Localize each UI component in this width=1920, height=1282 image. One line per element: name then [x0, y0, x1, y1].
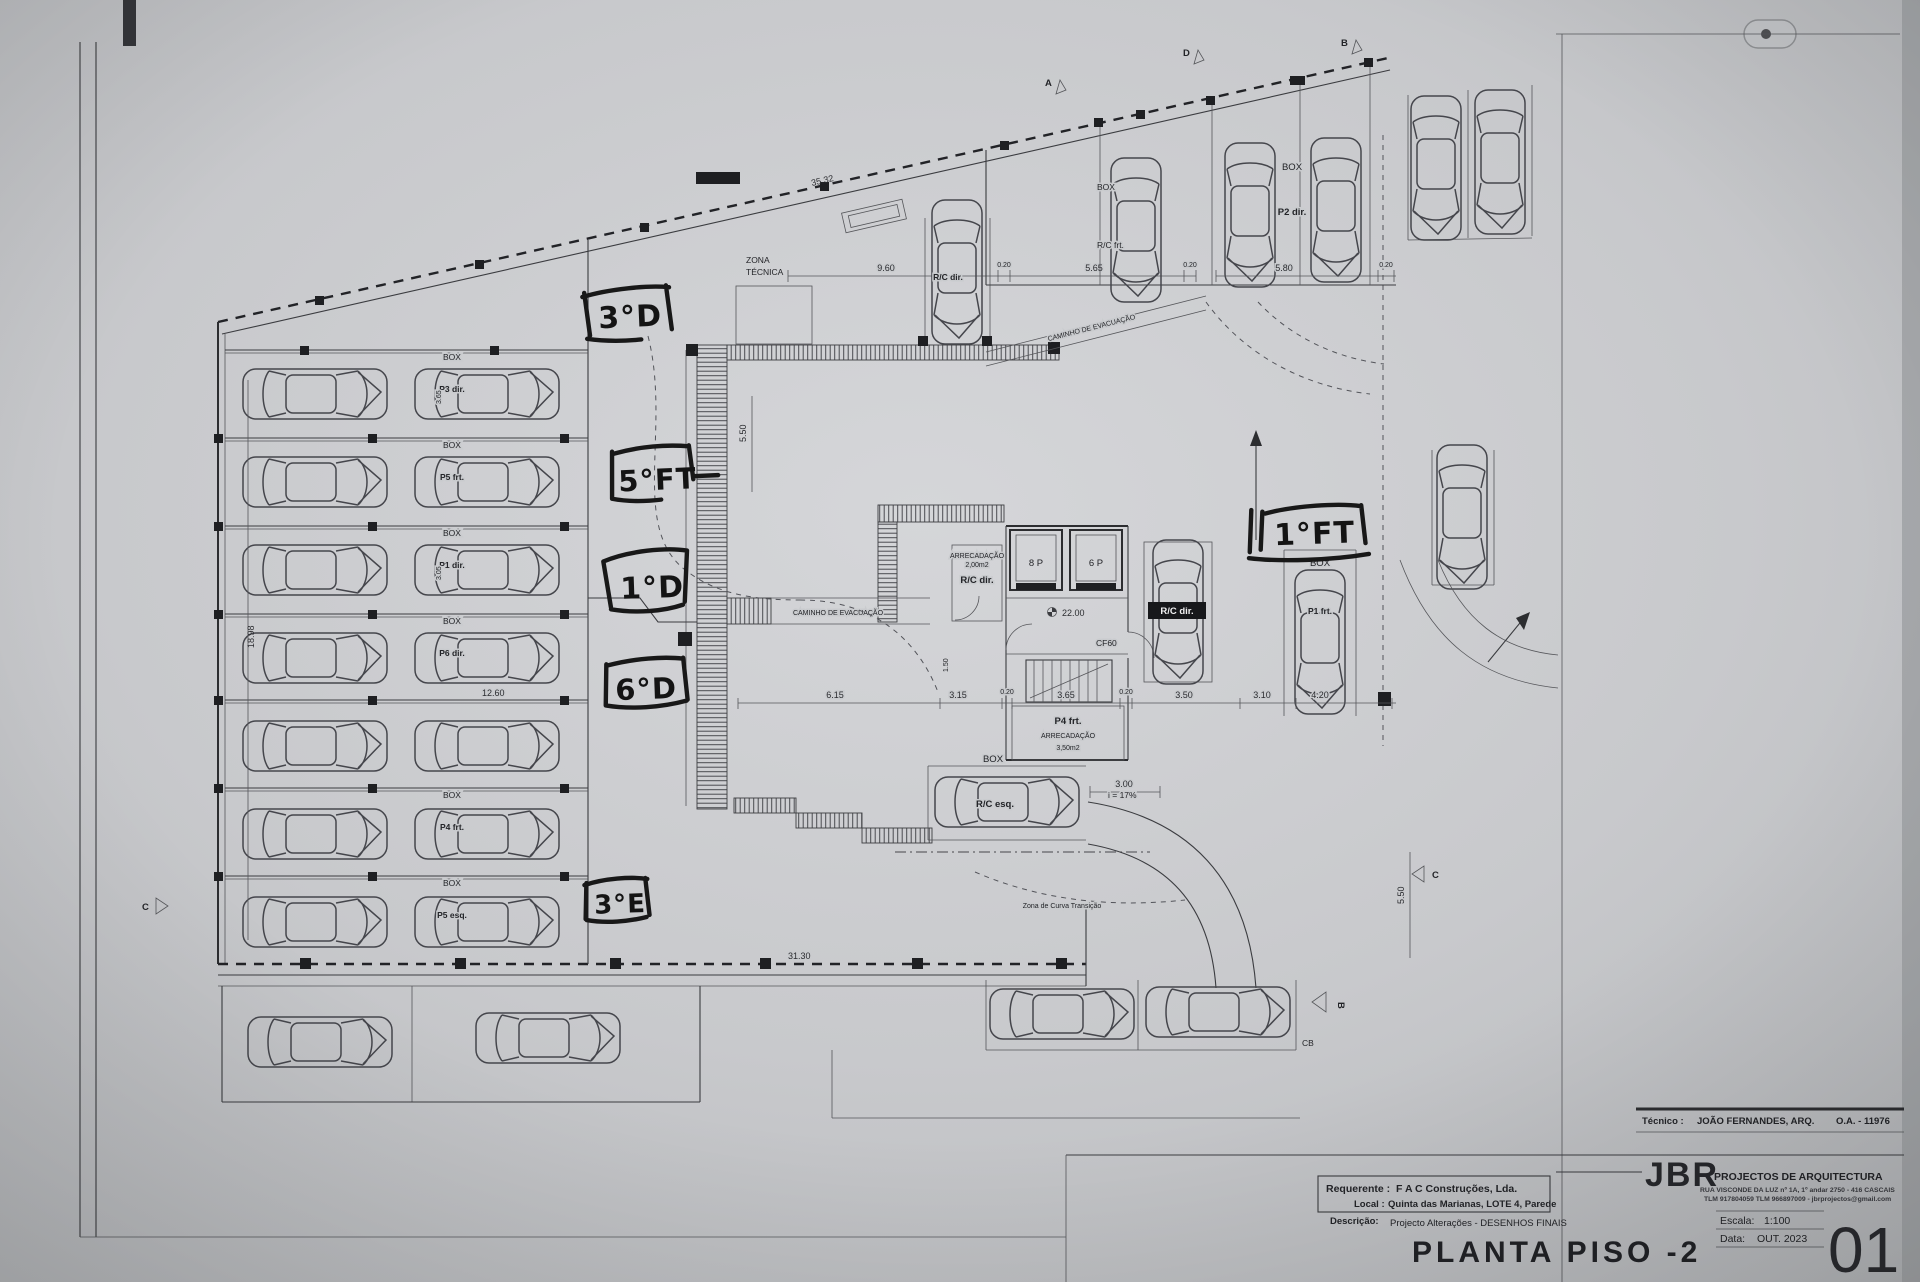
data-value: OUT. 2023: [1757, 1233, 1807, 1245]
dim-365: 3.65: [1057, 690, 1075, 700]
section-c-label: C: [142, 902, 149, 913]
rc-esq-label: R/C esq.: [976, 799, 1014, 810]
dim-615: 6.15: [826, 690, 844, 700]
data-label: Data:: [1720, 1233, 1745, 1245]
svg-text:1°FT: 1°FT: [1274, 515, 1356, 553]
escala-label: Escala:: [1720, 1215, 1754, 1227]
curve-note: Zona de Curva Transição: [1023, 903, 1102, 910]
tecnico-name: JOÃO FERNANDES, ARQ.: [1697, 1116, 1814, 1127]
dim-300: 3.00: [1115, 779, 1133, 789]
dim-350: 3.50: [1175, 690, 1193, 700]
rc-dir-label-inverse: R/C dir.: [1160, 606, 1193, 617]
floor-plan-photo: 35.32 31.30 BOX P3 dir. 3.65 BOX P5 frt.…: [0, 0, 1920, 1282]
box-label: BOX: [443, 878, 461, 888]
level-value: 22.00: [1062, 608, 1085, 618]
dim-580: 5.80: [1275, 263, 1293, 273]
arrecadacao-label: ARRECADAÇÃO: [1041, 731, 1096, 740]
slope-label: i = 17%: [1108, 790, 1137, 800]
local-label: Local :: [1354, 1199, 1385, 1210]
box-label: BOX: [443, 440, 461, 450]
tecnico-number: O.A. - 11976: [1836, 1116, 1890, 1127]
dim-365-row: 3.65: [436, 390, 443, 404]
box-label: BOX: [443, 616, 461, 626]
svg-text:5°FT: 5°FT: [618, 461, 698, 498]
section-d-label: D: [1183, 48, 1190, 59]
lift-6p-label: 6 P: [1089, 558, 1103, 569]
dim-020: 0.20: [1119, 689, 1133, 696]
box-label: BOX: [1097, 182, 1115, 192]
svg-text:6°D: 6°D: [615, 671, 678, 707]
stall-label-p1-frt: P1 frt.: [1308, 606, 1332, 616]
arrecadacao-area: 3,50m2: [1056, 745, 1079, 752]
drawing-title: PLANTA PISO -2: [1412, 1236, 1701, 1269]
requerente-value: F A C Construções, Lda.: [1396, 1183, 1517, 1195]
svg-text:3°E: 3°E: [594, 889, 647, 921]
rc-dir-label: R/C dir.: [933, 272, 963, 282]
caminho-evacuacao-label: CAMINHO DE EVACUAÇÃO: [793, 608, 884, 617]
tecnico-label: Técnico :: [1642, 1116, 1684, 1127]
dim-310: 3.10: [1253, 690, 1271, 700]
sheet-number: 01: [1828, 1214, 1899, 1282]
door-code-cf60: CF60: [1096, 638, 1117, 648]
dim-960: 9.60: [877, 263, 895, 273]
dim-020: 0.20: [997, 262, 1011, 269]
stall-label-p3-dir: P3 dir.: [439, 384, 465, 394]
zona-tecnica-line1: ZONA: [746, 255, 770, 265]
stall-label-p2-dir: P2 dir.: [1278, 207, 1307, 218]
svg-text:1°D: 1°D: [620, 570, 685, 607]
dim-020: 0.20: [1000, 689, 1014, 696]
dim-1260: 12.60: [482, 688, 505, 698]
arrecadacao-label: ARRECADAÇÃO: [950, 551, 1005, 560]
dim-550: 5.50: [738, 424, 748, 442]
photo-corner-mark: [123, 0, 136, 46]
rc-dir-label: R/C dir.: [960, 575, 993, 586]
stall-label-p4-frt: P4 frt.: [440, 822, 464, 832]
local-value: Quinta das Marianas, LOTE 4, Parede: [1388, 1199, 1556, 1210]
descricao-value: Projecto Alterações - DESENHOS FINAIS: [1390, 1218, 1567, 1229]
box-label: BOX: [1282, 162, 1303, 173]
lift-8p-label: 8 P: [1029, 558, 1043, 569]
stall-label-p6-dir: P6 dir.: [439, 648, 465, 658]
svg-text:3°D: 3°D: [598, 299, 663, 337]
firm-contacts: TLM 917804059 TLM 966897009 - jbrproject…: [1704, 1196, 1891, 1203]
dim-1898: 18.98: [246, 625, 256, 648]
plan-drawing: 35.32 31.30 BOX P3 dir. 3.65 BOX P5 frt.…: [0, 0, 1920, 1282]
dim-315: 3.15: [949, 690, 967, 700]
dim-020: 0.20: [1379, 262, 1393, 269]
escala-value: 1:100: [1764, 1215, 1790, 1227]
zona-tecnica-line2: TÉCNICA: [746, 267, 784, 277]
stall-label-p5-esq: P5 esq.: [437, 910, 467, 920]
dim-305-row: 3.05: [436, 566, 443, 580]
paper-right-edge: [1902, 0, 1920, 1282]
section-b-label: B: [1341, 38, 1348, 49]
descricao-label: Descrição:: [1330, 1216, 1379, 1227]
dim-bottom: 31.30: [788, 951, 811, 961]
section-a-label: A: [1045, 78, 1052, 89]
firm-address: RUA VISCONDE DA LUZ nº 1A, 1º andar 2750…: [1700, 1187, 1895, 1194]
box-label: BOX: [983, 754, 1004, 765]
section-b-label: B: [1335, 1002, 1346, 1009]
requerente-label: Requerente :: [1326, 1183, 1390, 1195]
arrecadacao-owner: P4 frt.: [1055, 716, 1082, 727]
box-label: BOX: [443, 352, 461, 362]
box-label: BOX: [443, 528, 461, 538]
dim-020: 0.20: [1183, 262, 1197, 269]
firm-name: PROJECTOS DE ARQUITECTURA: [1714, 1171, 1883, 1183]
stall-label-p5-frt: P5 frt.: [440, 472, 464, 482]
section-c-label: C: [1432, 870, 1439, 881]
arrecadacao-area: 2,00m2: [965, 562, 988, 569]
section-cb-label: CB: [1302, 1038, 1314, 1048]
rc-frt-label: R/C frt.: [1097, 240, 1124, 250]
box-label: BOX: [443, 790, 461, 800]
dim-550: 5.50: [1396, 886, 1406, 904]
stall-label-p1-dir: P1 dir.: [439, 560, 465, 570]
dim-420: 4.20: [1311, 690, 1329, 700]
dim-150: 1.50: [943, 658, 950, 672]
